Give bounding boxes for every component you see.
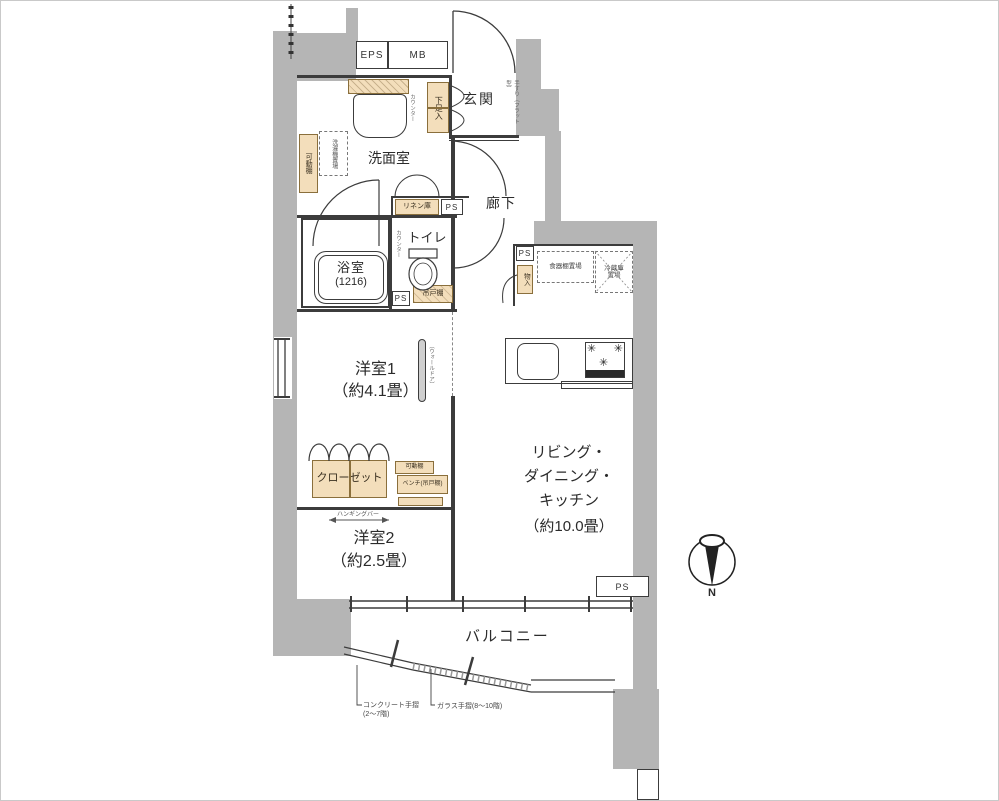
ps-label: PS [519,249,532,258]
north-compass-icon [689,535,735,586]
linen-closet-label: リネン庫 [403,203,431,210]
ldk-label-block: リビング・ ダイニング・ キッチン （約10.0畳） [497,441,641,539]
genkan-step-line [449,135,519,138]
linen-closet: リネン庫 [395,199,439,215]
ldk-label-3: キッチン [497,489,641,513]
washer-space: 洗濯機置場 [319,131,348,176]
washroom-counter-label: カウンター [408,94,416,140]
washroom-label: 洗面室 [351,148,427,168]
wall-line-pantry-west [513,244,515,306]
burner-icon: ✳ [614,342,623,355]
kitchen-sink [517,343,559,380]
balcony-window-band [349,596,633,612]
hanging-cupboard-label: 吊戸棚 [423,290,444,297]
hanging-bar-label: ハンギングバー [323,509,393,518]
wall-entry-step [541,89,559,136]
closet-divider [349,460,351,498]
wash-basin [353,94,407,138]
fridge-space: 冷蔵庫 置場 [595,251,633,293]
glass-rail-annotation: ガラス手摺(8～10階) [437,701,523,711]
movable-shelf-washroom-label: 可動棚 [305,153,312,174]
ps-label: PS [395,294,408,303]
ps-box-kitchen: PS [516,246,534,261]
bathroom-size-label: (1216) [314,276,388,288]
ps-box-ldk: PS [596,576,649,597]
stove-grill [586,370,624,377]
hanging-cupboard: 吊戸棚 [413,285,453,303]
concrete-rail-annotation: コンクリート手摺 (2～7階) [363,701,427,719]
wall-door-label: （ウォールドア） [427,343,435,399]
bench-label: ベンチ(吊戸棚) [403,481,443,487]
linen-doors [395,175,439,197]
fridge-label-2: 置場 [608,272,621,279]
railing-leader-lines [357,665,435,705]
entry-handrail-label: 手すり（フラット型） [504,80,520,132]
movable-shelf-closet: 可動棚 [395,461,434,474]
fridge-label-1: 冷蔵庫 [604,265,624,272]
dish-shelf-label: 食器棚置場 [549,263,582,270]
wall-corridor-right [545,131,561,223]
wall-line-linen-west [391,196,393,217]
counter-edge [561,381,633,389]
concrete-rail-line1: コンクリート手摺 [363,701,427,710]
concrete-rail-line2: (2～7階) [363,710,427,719]
wall-eps-stub [346,8,358,41]
wall-bottom-left [273,599,351,656]
toilet-door-arc [454,218,504,268]
wall-line-washroom-top [297,75,449,78]
vanity-shelf [348,79,409,94]
bench-band [398,497,443,506]
storage-label: 物入 [522,273,529,286]
dish-shelf-space: 食器棚置場 [537,251,594,283]
genkan-step-line2 [449,140,519,141]
burner-icon: ✳ [587,342,596,355]
floor-plan: EPS MB PS PS PS PS 下足入 玄関 手すり（フラット型） カウン… [0,0,999,801]
stove: ✳ ✳ ✳ [585,342,625,378]
bathroom-label: 浴室 [314,257,388,276]
wall-line-bedroom1-north [297,309,457,312]
ldk-size-label: （約10.0畳） [497,515,641,539]
bedroom2-size-label: （約2.5畳） [299,550,449,573]
wall-door-stack [418,339,426,402]
wall-line-linen-top [391,196,469,198]
ps-label: PS [446,203,459,212]
ldk-label-1: リビング・ [497,441,641,465]
washer-space-label: 洗濯機置場 [330,139,337,169]
linework-layer [1,1,999,801]
wall-line-ldk-west [451,396,455,601]
corridor-label: 廊下 [471,193,531,213]
ldk-label-2: ダイニング・ [497,465,641,489]
entrance-door-arc [453,11,515,73]
movable-shelf-closet-label: 可動棚 [405,464,423,470]
bathroom-label-block: 浴室 (1216) [314,257,388,288]
bedroom2-label-block: 洋室2 （約2.5畳） [299,527,449,573]
toilet-fixture [409,249,437,290]
outline-block-bottom-right [637,769,659,800]
wall-door-opening-dashed [452,312,454,396]
movable-shelf-washroom: 可動棚 [299,134,318,193]
balcony-label: バルコニー [465,625,555,646]
eps-label: EPS [360,50,383,61]
storage-box: 物入 [517,265,533,294]
ps-box-toilet: PS [392,291,410,306]
bedroom2-label: 洋室2 [299,527,449,550]
toilet-counter-label: カウンター [394,230,402,270]
washroom-door-arc [451,141,506,196]
wall-balcony-block [613,689,659,769]
balcony-railing [344,640,615,692]
wall-line-genkan-west [449,75,452,139]
mb-label: MB [410,50,427,61]
north-label: N [703,586,721,599]
ps-label: PS [615,582,629,592]
closet-folding-doors [309,444,389,461]
toilet-label: トイレ [401,227,453,246]
ps-box-linen: PS [441,199,463,215]
wall-left [273,31,297,656]
bench-box: ベンチ(吊戸棚) [397,475,448,494]
eps-box: EPS [356,41,388,69]
burner-icon: ✳ [599,356,608,369]
wall-kitchen-top [534,221,657,245]
shoe-cabinet-divider [427,107,449,109]
mb-box: MB [388,41,448,69]
